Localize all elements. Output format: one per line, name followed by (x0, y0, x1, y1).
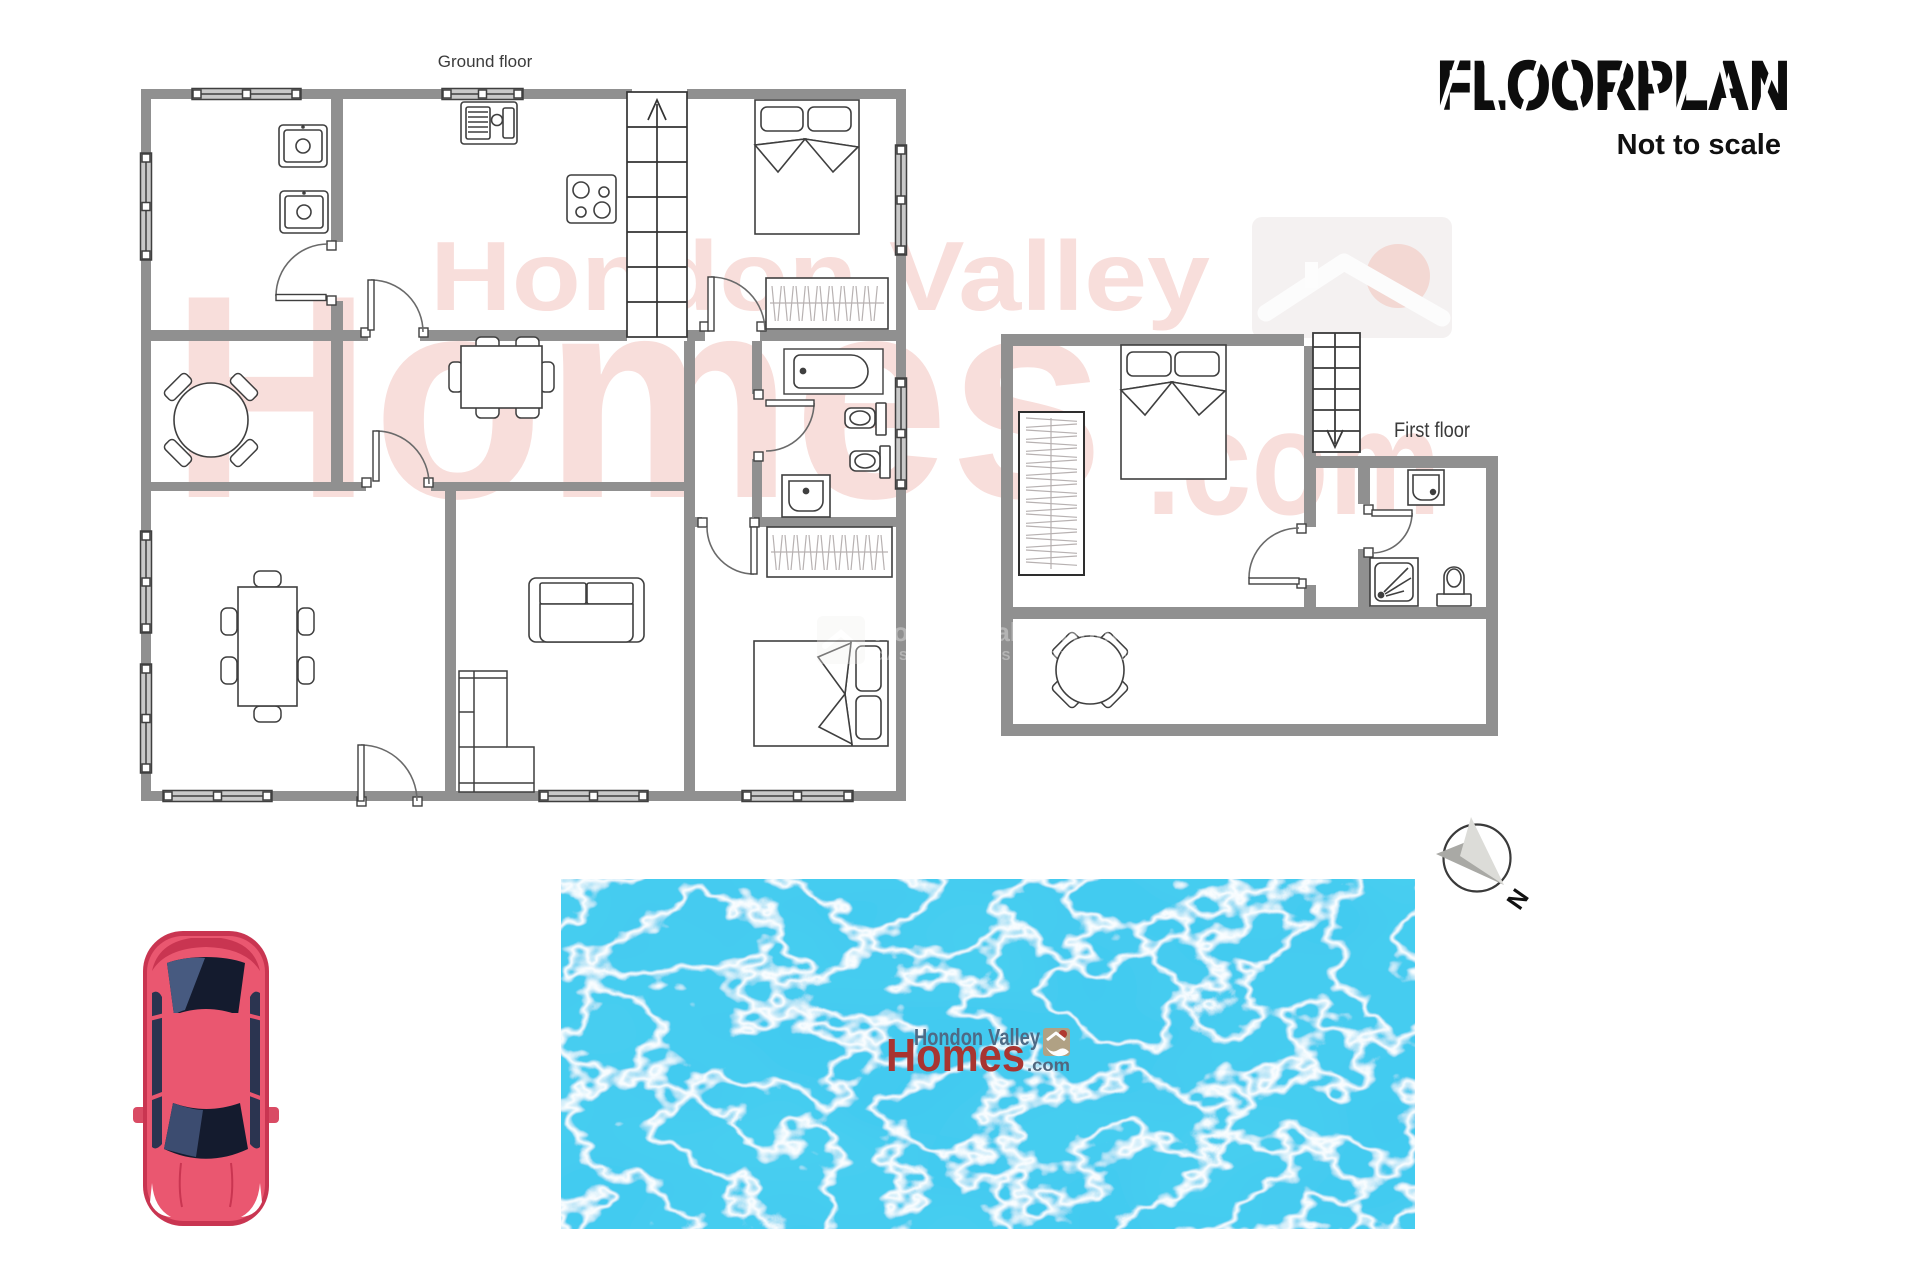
svg-text:.com: .com (1027, 1055, 1070, 1075)
svg-text:C A S A S Y V I L L A S: C A S A S Y V I L L A S · C O S T A B L … (874, 648, 1156, 663)
svg-text:Hondon Valley Homes: Hondon Valley Homes (874, 617, 1147, 647)
svg-text:N: N (1500, 883, 1533, 914)
svg-text:Not to scale: Not to scale (1617, 129, 1781, 161)
svg-text:Ground floor: Ground floor (438, 52, 533, 71)
svg-text:Homes: Homes (886, 1029, 1025, 1081)
svg-text:First floor: First floor (1394, 419, 1470, 442)
